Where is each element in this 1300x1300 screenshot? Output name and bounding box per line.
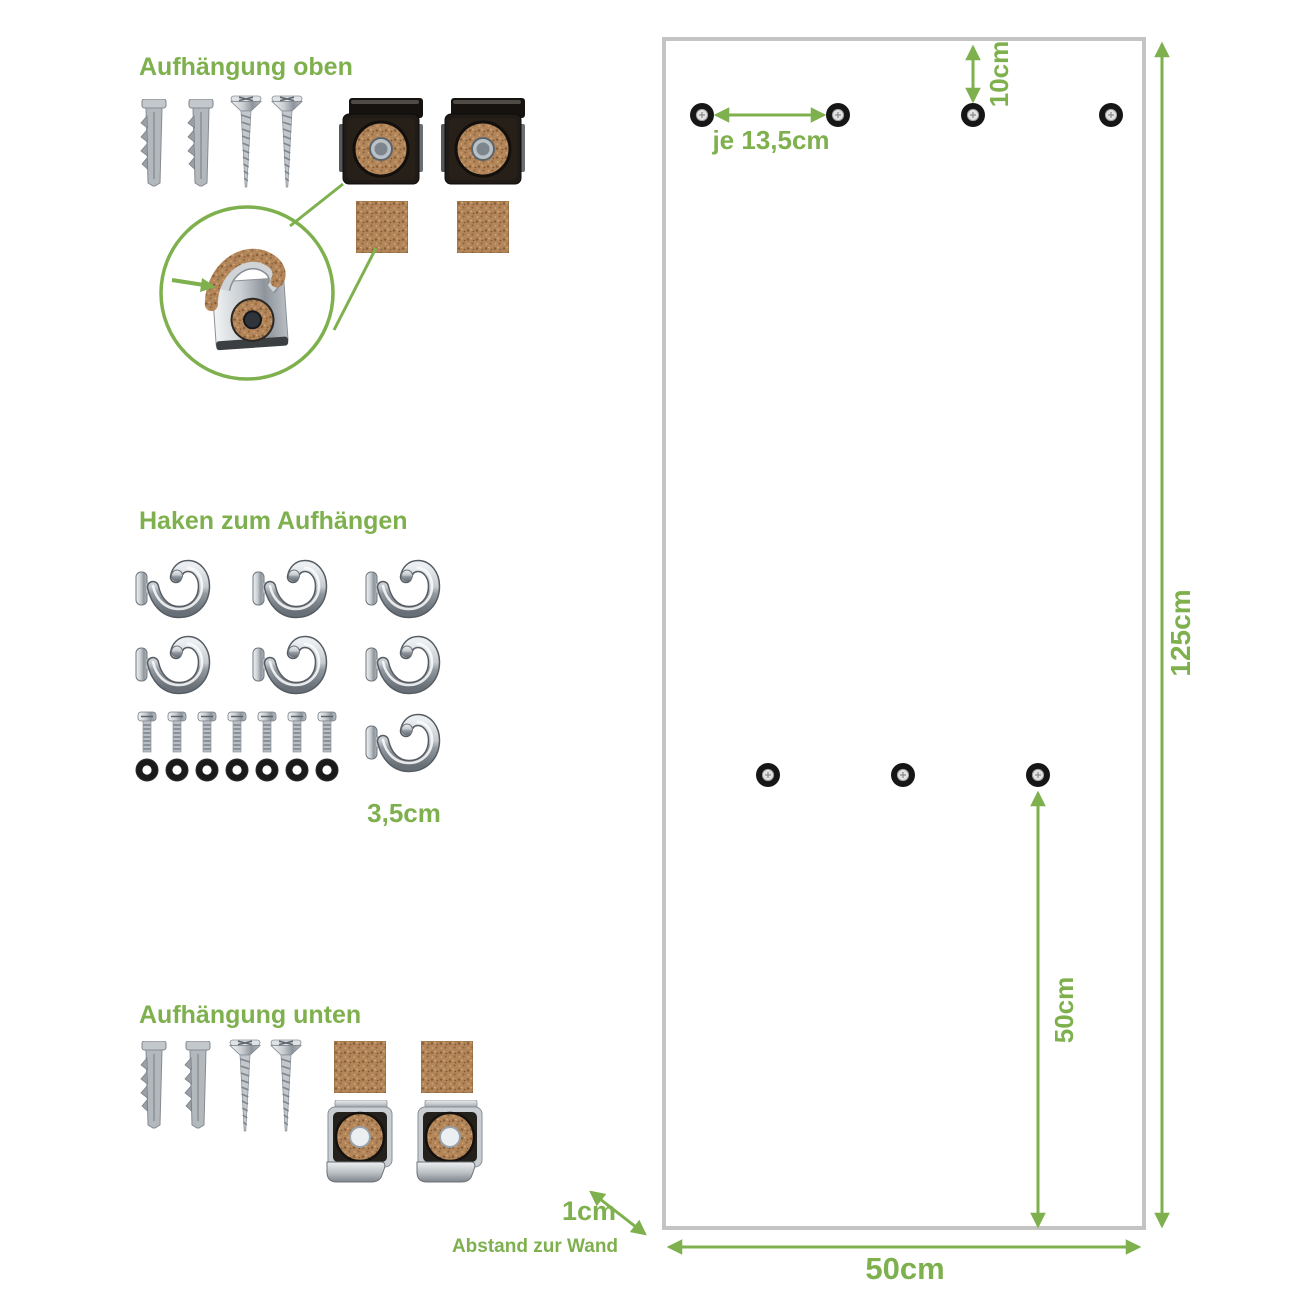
wall-plug-icon bbox=[186, 99, 216, 187]
cork-pad-icon bbox=[356, 201, 408, 253]
top-spacing-label: je 13,5cm bbox=[712, 127, 829, 153]
screw-icon bbox=[271, 94, 303, 192]
section-title-top-mount: Aufhängung oben bbox=[139, 55, 353, 80]
hook-icon bbox=[364, 705, 446, 777]
wall-gap-label: 1cm bbox=[562, 1198, 616, 1225]
bolt-icon bbox=[257, 711, 277, 755]
cork-pad-icon bbox=[334, 1041, 386, 1093]
washer-icon bbox=[225, 758, 249, 782]
section-title-bottom-mount: Aufhängung unten bbox=[139, 1003, 361, 1028]
height-label: 125cm bbox=[1167, 589, 1195, 676]
bolt-icon bbox=[227, 711, 247, 755]
mounting-clip-top-icon bbox=[339, 92, 423, 188]
bolt-icon bbox=[137, 711, 157, 755]
width-label: 50cm bbox=[865, 1253, 944, 1284]
screw-icon bbox=[270, 1038, 302, 1136]
mounting-clip-top-icon bbox=[441, 92, 525, 188]
screw-icon bbox=[229, 1038, 261, 1136]
bolt-icon bbox=[317, 711, 337, 755]
hook-icon bbox=[134, 551, 216, 623]
wall-plug-icon bbox=[139, 99, 169, 187]
mounting-clip-bottom-icon bbox=[325, 1100, 395, 1184]
mounting-clip-bottom-icon bbox=[415, 1100, 485, 1184]
clip-detail-magnifier-icon bbox=[152, 198, 342, 388]
washer-icon bbox=[135, 758, 159, 782]
washer-icon bbox=[165, 758, 189, 782]
hook-icon bbox=[364, 551, 446, 623]
section-title-hooks: Haken zum Aufhängen bbox=[139, 509, 408, 534]
hook-icon bbox=[251, 627, 333, 699]
washer-icon bbox=[285, 758, 309, 782]
washer-icon bbox=[195, 758, 219, 782]
hook-icon bbox=[134, 627, 216, 699]
mounting-instructions-diagram: Aufhängung oben Haken zum Aufhängen bbox=[0, 0, 1300, 1300]
washer-icon bbox=[255, 758, 279, 782]
screw-icon bbox=[230, 94, 262, 192]
cork-pad-icon bbox=[457, 201, 509, 253]
board-outline bbox=[662, 37, 1146, 1230]
hook-size-label: 3,5cm bbox=[367, 800, 441, 826]
bolt-icon bbox=[197, 711, 217, 755]
bolt-icon bbox=[167, 711, 187, 755]
hook-icon bbox=[251, 551, 333, 623]
cork-pad-icon bbox=[421, 1041, 473, 1093]
mid-height-label: 50cm bbox=[1051, 977, 1077, 1044]
hook-icon bbox=[364, 627, 446, 699]
wall-plug-icon bbox=[139, 1041, 169, 1129]
wall-plug-icon bbox=[183, 1041, 213, 1129]
top-offset-label: 10cm bbox=[986, 41, 1012, 108]
wall-gap-caption: Abstand zur Wand bbox=[452, 1237, 618, 1256]
washer-icon bbox=[315, 758, 339, 782]
bolt-icon bbox=[287, 711, 307, 755]
